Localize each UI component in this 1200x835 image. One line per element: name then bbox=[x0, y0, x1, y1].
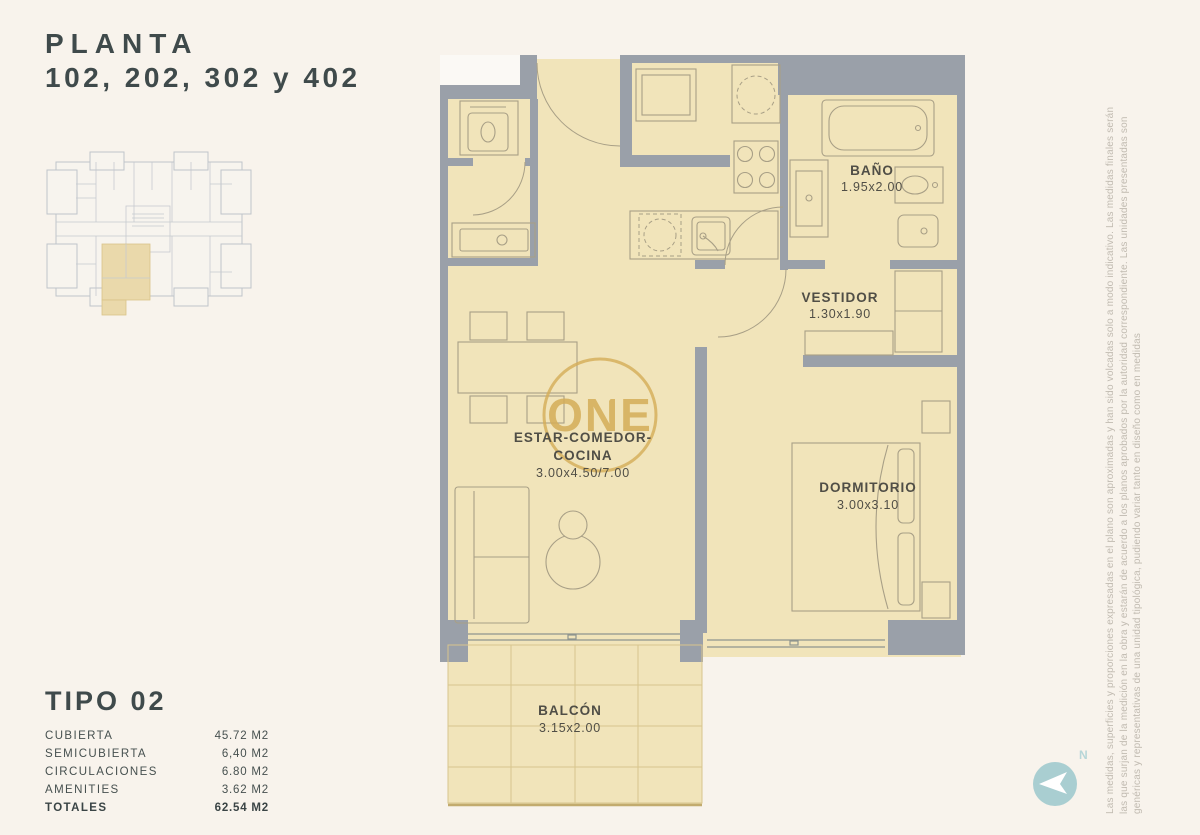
summary-row-totales: TOTALES 62.54 M2 bbox=[45, 802, 269, 820]
page-title: PLANTA 102, 202, 302 y 402 bbox=[45, 28, 361, 94]
label-bano: BAÑO bbox=[850, 163, 894, 178]
dims-estar: 3.00x4.50/7.00 bbox=[536, 466, 630, 480]
summary-row-amenities: AMENITIES 3.62 M2 bbox=[45, 784, 269, 802]
building-key-plan bbox=[36, 132, 262, 330]
summary-value: 45.72 M2 bbox=[215, 730, 269, 742]
dims-vestidor: 1.30x1.90 bbox=[809, 307, 871, 321]
title-planta: PLANTA bbox=[45, 28, 361, 60]
summary-value: 6.80 M2 bbox=[222, 766, 269, 778]
summary-row-cubierta: CUBIERTA 45.72 M2 bbox=[45, 730, 269, 748]
summary-value: 3.62 M2 bbox=[222, 784, 269, 796]
summary-row-semicubierta: SEMICUBIERTA 6,40 M2 bbox=[45, 748, 269, 766]
floor-plan: ONE BAÑO 1.95x2.00 VESTIDOR 1.30x1.90 ES… bbox=[440, 55, 965, 813]
compass-north-label: N bbox=[1079, 748, 1088, 762]
summary-label: TOTALES bbox=[45, 802, 107, 814]
label-vestidor: VESTIDOR bbox=[801, 290, 878, 305]
disclaimer-line-2: las que surjan de la medición en la obra… bbox=[1118, 107, 1132, 814]
label-dormitorio: DORMITORIO bbox=[819, 480, 917, 495]
dims-bano: 1.95x2.00 bbox=[841, 180, 903, 194]
label-estar-2: COCINA bbox=[553, 448, 612, 463]
unit-summary: TIPO 02 CUBIERTA 45.72 M2 SEMICUBIERTA 6… bbox=[45, 686, 269, 820]
north-compass: N bbox=[1015, 733, 1105, 813]
summary-label: CIRCULACIONES bbox=[45, 766, 158, 778]
summary-label: CUBIERTA bbox=[45, 730, 113, 742]
dims-dormitorio: 3.00x3.10 bbox=[837, 498, 899, 512]
summary-label: SEMICUBIERTA bbox=[45, 748, 147, 760]
summary-label: AMENITIES bbox=[45, 784, 120, 796]
dims-balcon: 3.15x2.00 bbox=[539, 721, 601, 735]
label-estar-1: ESTAR-COMEDOR- bbox=[514, 430, 652, 445]
highlighted-unit bbox=[102, 244, 150, 315]
unit-type-heading: TIPO 02 bbox=[45, 686, 269, 717]
summary-value: 6,40 M2 bbox=[222, 748, 269, 760]
label-balcon: BALCÓN bbox=[538, 703, 602, 718]
title-units: 102, 202, 302 y 402 bbox=[45, 62, 361, 94]
legal-disclaimer: Las medidas, superficies y proporciones … bbox=[1104, 107, 1145, 814]
disclaimer-line-3: genéricas y representativas de una unida… bbox=[1131, 107, 1145, 814]
summary-row-circulaciones: CIRCULACIONES 6.80 M2 bbox=[45, 766, 269, 784]
disclaimer-line-1: Las medidas, superficies y proporciones … bbox=[1104, 107, 1118, 814]
summary-value: 62.54 M2 bbox=[215, 802, 269, 814]
